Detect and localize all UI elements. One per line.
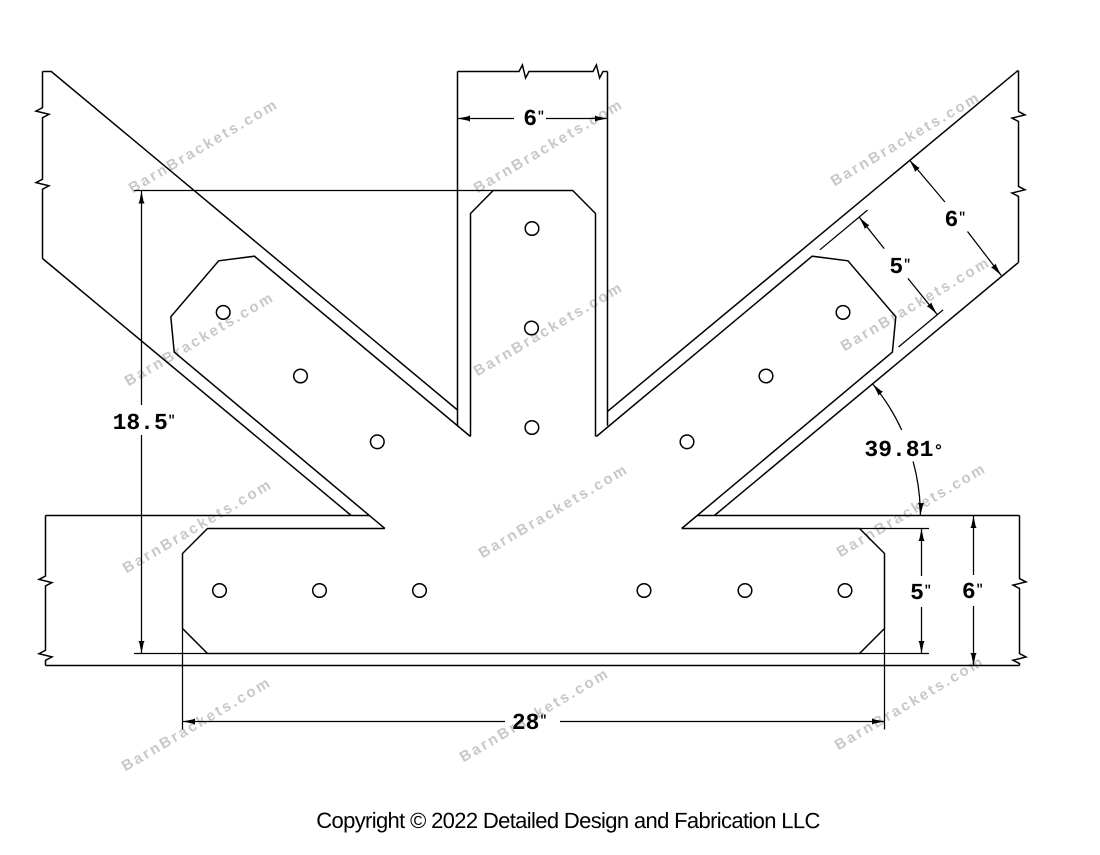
svg-text:39.81°: 39.81° xyxy=(864,437,943,463)
svg-text:Copyright © 2022 Detailed Desi: Copyright © 2022 Detailed Design and Fab… xyxy=(316,808,820,833)
svg-text:18.5": 18.5" xyxy=(113,410,176,436)
